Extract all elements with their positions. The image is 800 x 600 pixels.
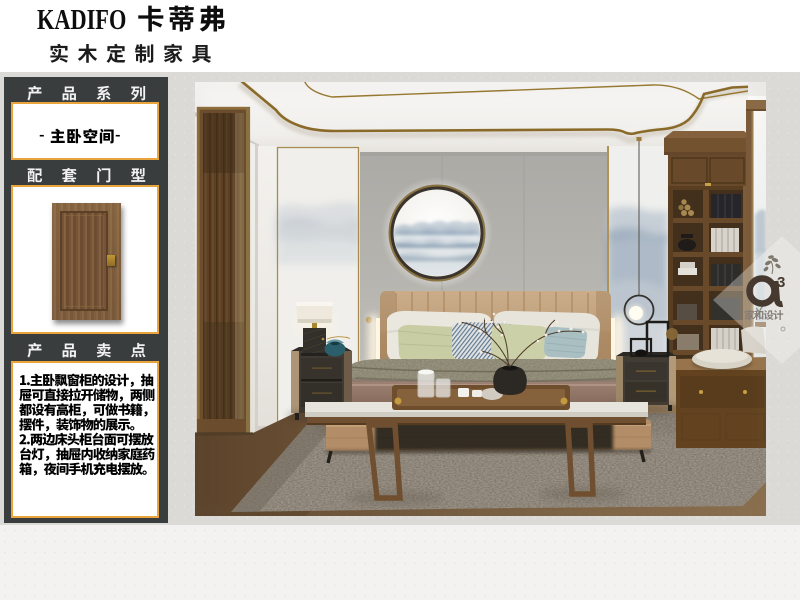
svg-text:3: 3 xyxy=(777,274,785,291)
